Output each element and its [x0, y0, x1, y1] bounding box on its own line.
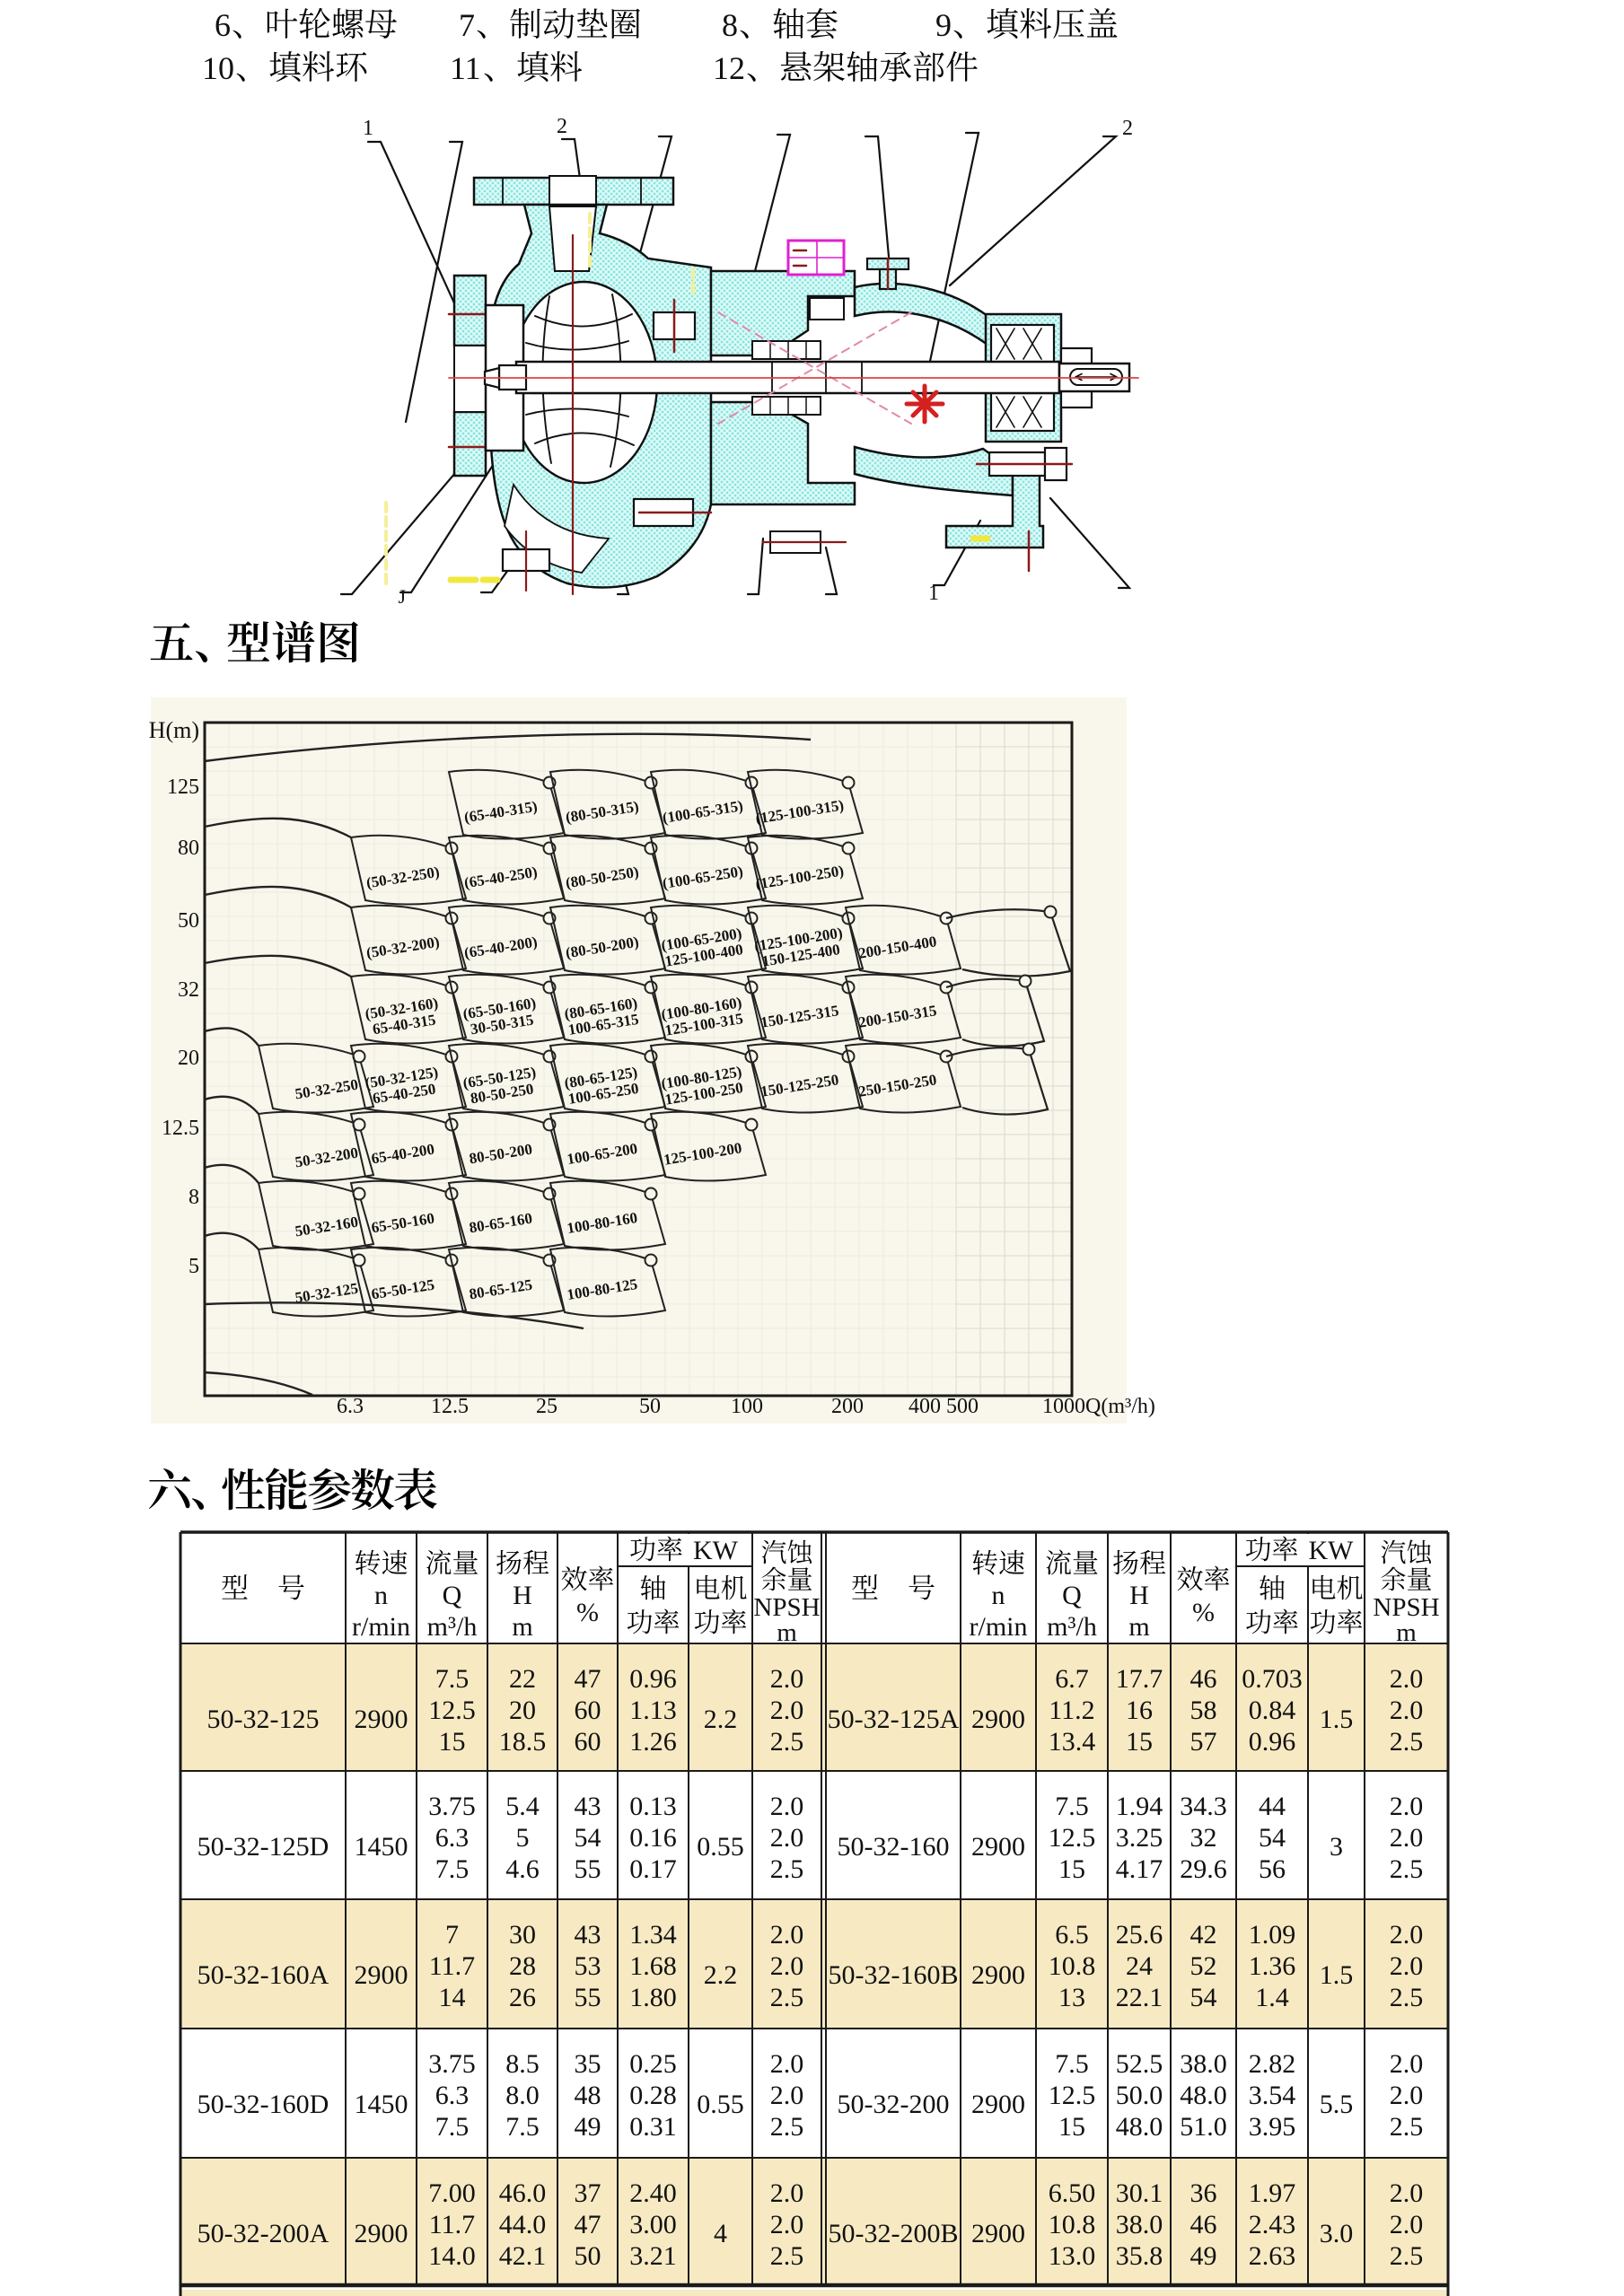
- svg-text:6.3: 6.3: [435, 1823, 470, 1853]
- svg-text:1.5: 1.5: [1320, 1960, 1354, 1990]
- svg-text:52.5: 52.5: [1116, 2049, 1163, 2079]
- svg-text:2.2: 2.2: [704, 1704, 738, 1734]
- svg-text:44: 44: [1259, 1792, 1286, 1821]
- svg-text:60: 60: [575, 1696, 601, 1725]
- svg-text:2.5: 2.5: [770, 1727, 804, 1757]
- svg-text:57: 57: [1190, 1727, 1217, 1757]
- svg-text:2.5: 2.5: [1390, 1854, 1424, 1884]
- svg-text:7: 7: [445, 1920, 459, 1950]
- svg-text:0.84: 0.84: [1249, 1696, 1296, 1725]
- svg-text:46: 46: [1190, 2210, 1217, 2239]
- svg-text:25: 25: [536, 1395, 557, 1418]
- svg-text:3.25: 3.25: [1116, 1823, 1163, 1853]
- svg-text:2.0: 2.0: [770, 1920, 804, 1950]
- svg-text:50-32-160B: 50-32-160B: [829, 1960, 959, 1990]
- svg-text:6.3: 6.3: [435, 2081, 470, 2110]
- svg-text:2900: 2900: [971, 2219, 1025, 2248]
- svg-text:2900: 2900: [355, 1704, 408, 1734]
- svg-text:5.4: 5.4: [505, 1792, 540, 1821]
- svg-text:2.5: 2.5: [770, 1983, 804, 2012]
- svg-text:2.0: 2.0: [770, 1951, 804, 1981]
- svg-text:1.4: 1.4: [1255, 1983, 1289, 2012]
- svg-text:13: 13: [1058, 1983, 1085, 2012]
- svg-text:49: 49: [575, 2112, 601, 2142]
- svg-text:1.13: 1.13: [629, 1696, 677, 1725]
- svg-text:14: 14: [439, 1983, 466, 2012]
- svg-text:46: 46: [1190, 1664, 1217, 1694]
- svg-text:2.63: 2.63: [1249, 2241, 1296, 2271]
- svg-text:30: 30: [509, 1920, 536, 1950]
- svg-text:50-32-200: 50-32-200: [838, 2090, 950, 2119]
- svg-text:2.5: 2.5: [770, 2241, 804, 2271]
- svg-text:48.0: 48.0: [1116, 2112, 1163, 2142]
- svg-text:8: 8: [189, 1186, 199, 1209]
- svg-text:20: 20: [509, 1696, 536, 1725]
- svg-text:2900: 2900: [971, 2090, 1025, 2119]
- svg-text:10.8: 10.8: [1049, 2210, 1096, 2239]
- svg-text:46.0: 46.0: [499, 2178, 547, 2208]
- svg-text:50: 50: [575, 2241, 601, 2271]
- svg-text:11: 11: [450, 50, 481, 86]
- svg-text:50-32-125A: 50-32-125A: [828, 1704, 960, 1734]
- svg-text:49: 49: [1190, 2241, 1217, 2271]
- svg-text:38.0: 38.0: [1180, 2049, 1227, 2079]
- svg-text:50-32-160D: 50-32-160D: [198, 2090, 329, 2119]
- svg-text:2.0: 2.0: [1390, 2178, 1424, 2208]
- svg-text:2: 2: [1122, 117, 1133, 140]
- svg-text:15: 15: [1058, 1854, 1085, 1884]
- svg-text:0.96: 0.96: [629, 1664, 677, 1694]
- svg-text:1.36: 1.36: [1249, 1951, 1296, 1981]
- svg-text:80: 80: [178, 837, 199, 860]
- svg-text:10.8: 10.8: [1049, 1951, 1096, 1981]
- svg-text:6: 6: [215, 7, 231, 43]
- svg-text:2.0: 2.0: [770, 2178, 804, 2208]
- svg-text:20: 20: [178, 1047, 199, 1070]
- svg-text:1.97: 1.97: [1249, 2178, 1296, 2208]
- svg-text:6.7: 6.7: [1055, 1664, 1089, 1694]
- svg-text:42: 42: [1190, 1920, 1217, 1950]
- svg-text:16: 16: [1126, 1696, 1153, 1725]
- svg-text:3.75: 3.75: [428, 1792, 476, 1821]
- svg-text:11.7: 11.7: [429, 1951, 475, 1981]
- svg-text:8.5: 8.5: [505, 2049, 540, 2079]
- svg-text:7.5: 7.5: [1055, 1792, 1089, 1821]
- svg-text:4.6: 4.6: [505, 1854, 540, 1884]
- svg-text:2.40: 2.40: [629, 2178, 677, 2208]
- svg-text:12.5: 12.5: [162, 1117, 199, 1140]
- svg-text:1.80: 1.80: [629, 1983, 677, 2012]
- svg-text:54: 54: [1259, 1823, 1286, 1853]
- svg-text:12.5: 12.5: [1049, 2081, 1096, 2110]
- svg-text:m: m: [1396, 1618, 1417, 1647]
- svg-text:1: 1: [363, 117, 373, 140]
- svg-text:1.5: 1.5: [1320, 1704, 1354, 1734]
- svg-text:2.0: 2.0: [770, 2210, 804, 2239]
- svg-text:200: 200: [831, 1395, 864, 1418]
- svg-text:Q: Q: [1062, 1581, 1082, 1610]
- svg-text:54: 54: [1190, 1983, 1217, 2012]
- svg-text:7.5: 7.5: [435, 2112, 470, 2142]
- svg-text:1.26: 1.26: [629, 1727, 677, 1757]
- svg-text:0.13: 0.13: [629, 1792, 677, 1821]
- svg-text:4: 4: [714, 2219, 727, 2248]
- svg-text:7.5: 7.5: [505, 2112, 540, 2142]
- svg-text:KW: KW: [693, 1536, 739, 1565]
- svg-text:35.8: 35.8: [1116, 2241, 1163, 2271]
- svg-text:50-32-160: 50-32-160: [838, 1832, 950, 1862]
- svg-text:34.3: 34.3: [1180, 1792, 1227, 1821]
- svg-text:3: 3: [1330, 1832, 1343, 1862]
- svg-text:6.3: 6.3: [337, 1395, 364, 1418]
- svg-text:11.2: 11.2: [1049, 1696, 1094, 1725]
- svg-text:2.5: 2.5: [1390, 2112, 1424, 2142]
- svg-text:50: 50: [639, 1395, 661, 1418]
- svg-text:43: 43: [575, 1920, 601, 1950]
- svg-text:13.4: 13.4: [1049, 1727, 1096, 1757]
- svg-text:2.0: 2.0: [1390, 2049, 1424, 2079]
- svg-text:100: 100: [731, 1395, 763, 1418]
- svg-text:1.68: 1.68: [629, 1951, 677, 1981]
- svg-text:55: 55: [575, 1983, 601, 2012]
- svg-text:2.5: 2.5: [770, 1854, 804, 1884]
- svg-text:47: 47: [575, 2210, 601, 2239]
- svg-text:37: 37: [575, 2178, 601, 2208]
- svg-text:1000Q(m³/h): 1000Q(m³/h): [1042, 1395, 1155, 1418]
- svg-text:50-32-200B: 50-32-200B: [829, 2219, 959, 2248]
- svg-text:2.5: 2.5: [1390, 2241, 1424, 2271]
- svg-text:5: 5: [189, 1255, 199, 1278]
- svg-text:m: m: [1128, 1612, 1149, 1642]
- svg-text:H(m): H(m): [149, 717, 199, 743]
- svg-text:7.5: 7.5: [435, 1854, 470, 1884]
- svg-text:0.16: 0.16: [629, 1823, 677, 1853]
- svg-text:2.0: 2.0: [770, 1696, 804, 1725]
- svg-text:18.5: 18.5: [499, 1727, 547, 1757]
- svg-text:36: 36: [1190, 2178, 1217, 2208]
- svg-text:2.2: 2.2: [704, 1960, 738, 1990]
- svg-text:12.5: 12.5: [431, 1395, 469, 1418]
- svg-text:2.0: 2.0: [1390, 1696, 1424, 1725]
- svg-text:38.0: 38.0: [1116, 2210, 1163, 2239]
- svg-text:12.5: 12.5: [1049, 1823, 1096, 1853]
- svg-text:12.5: 12.5: [428, 1696, 476, 1725]
- svg-text:50-32-125D: 50-32-125D: [198, 1832, 329, 1862]
- svg-text:0.703: 0.703: [1242, 1664, 1303, 1694]
- svg-text:48: 48: [575, 2081, 601, 2110]
- svg-text:55: 55: [575, 1854, 601, 1884]
- svg-text:1.94: 1.94: [1116, 1792, 1163, 1821]
- svg-text:2.0: 2.0: [770, 2081, 804, 2110]
- svg-text:50.0: 50.0: [1116, 2081, 1163, 2110]
- svg-text:14.0: 14.0: [428, 2241, 476, 2271]
- svg-text:9: 9: [935, 7, 952, 43]
- svg-text:n: n: [992, 1581, 1005, 1610]
- svg-text:0.17: 0.17: [629, 1854, 677, 1884]
- svg-text:3.95: 3.95: [1249, 2112, 1296, 2142]
- svg-text:0.55: 0.55: [697, 1832, 744, 1862]
- svg-text:50-32-160A: 50-32-160A: [198, 1960, 329, 1990]
- svg-text:%: %: [1192, 1598, 1215, 1627]
- svg-text:1.09: 1.09: [1249, 1920, 1296, 1950]
- svg-text:29.6: 29.6: [1180, 1854, 1227, 1884]
- svg-text:m: m: [777, 1618, 797, 1647]
- svg-text:7.5: 7.5: [435, 1664, 470, 1694]
- svg-text:1450: 1450: [355, 1832, 408, 1862]
- svg-text:KW: KW: [1309, 1536, 1355, 1565]
- svg-text:50-32-200A: 50-32-200A: [198, 2219, 329, 2248]
- svg-text:50: 50: [178, 909, 199, 933]
- svg-text:3.54: 3.54: [1249, 2081, 1296, 2110]
- svg-text:3.21: 3.21: [629, 2241, 677, 2271]
- svg-text:1450: 1450: [355, 2090, 408, 2119]
- svg-text:0.28: 0.28: [629, 2081, 677, 2110]
- svg-text:2.0: 2.0: [770, 2049, 804, 2079]
- svg-text:n: n: [374, 1581, 388, 1610]
- svg-text:5: 5: [516, 1823, 530, 1853]
- svg-text:m: m: [512, 1612, 532, 1642]
- svg-text:60: 60: [575, 1727, 601, 1757]
- svg-text:2: 2: [557, 115, 567, 138]
- svg-text:4.17: 4.17: [1116, 1854, 1163, 1884]
- svg-text:1.34: 1.34: [629, 1920, 677, 1950]
- svg-text:52: 52: [1190, 1951, 1217, 1981]
- svg-text:2.5: 2.5: [1390, 1727, 1424, 1757]
- svg-text:35: 35: [575, 2049, 601, 2079]
- svg-text:53: 53: [575, 1951, 601, 1981]
- svg-text:H: H: [513, 1581, 532, 1610]
- svg-text:15: 15: [439, 1727, 466, 1757]
- svg-text:2.0: 2.0: [1390, 2210, 1424, 2239]
- svg-text:15: 15: [1126, 1727, 1153, 1757]
- svg-text:5.5: 5.5: [1320, 2090, 1354, 2119]
- svg-text:2.0: 2.0: [770, 1792, 804, 1821]
- svg-text:2.43: 2.43: [1249, 2210, 1296, 2239]
- svg-text:7.5: 7.5: [1055, 2049, 1089, 2079]
- svg-text:2.0: 2.0: [1390, 1951, 1424, 1981]
- svg-text:7: 7: [459, 7, 475, 43]
- svg-text:2.82: 2.82: [1249, 2049, 1296, 2079]
- svg-text:7.00: 7.00: [428, 2178, 476, 2208]
- svg-text:44.0: 44.0: [499, 2210, 547, 2239]
- svg-text:26: 26: [509, 1983, 536, 2012]
- svg-text:2900: 2900: [971, 1960, 1025, 1990]
- svg-text:400 500: 400 500: [909, 1395, 979, 1418]
- svg-text:3.00: 3.00: [629, 2210, 677, 2239]
- svg-text:3.0: 3.0: [1320, 2219, 1354, 2248]
- svg-text:r/min: r/min: [352, 1612, 410, 1642]
- svg-text:125: 125: [167, 776, 199, 799]
- svg-text:6.5: 6.5: [1055, 1920, 1089, 1950]
- svg-text:2900: 2900: [355, 1960, 408, 1990]
- svg-text:2900: 2900: [971, 1832, 1025, 1862]
- svg-text:10: 10: [202, 50, 234, 86]
- svg-text:Q: Q: [443, 1581, 462, 1610]
- svg-text:15: 15: [1058, 2112, 1085, 2142]
- svg-text:28: 28: [509, 1951, 536, 1981]
- svg-text:32: 32: [1190, 1823, 1217, 1853]
- svg-text:0.96: 0.96: [1249, 1727, 1296, 1757]
- svg-text:8.0: 8.0: [505, 2081, 540, 2110]
- svg-text:0.31: 0.31: [629, 2112, 677, 2142]
- svg-text:32: 32: [178, 978, 199, 1002]
- svg-text:24: 24: [1126, 1951, 1153, 1981]
- svg-text:2.0: 2.0: [1390, 2081, 1424, 2110]
- svg-text:1: 1: [928, 582, 939, 605]
- svg-text:42.1: 42.1: [499, 2241, 547, 2271]
- svg-text:54: 54: [575, 1823, 601, 1853]
- svg-text:2.0: 2.0: [1390, 1664, 1424, 1694]
- svg-text:12: 12: [713, 50, 745, 86]
- svg-text:0.55: 0.55: [697, 2090, 744, 2119]
- svg-text:m³/h: m³/h: [427, 1612, 478, 1642]
- svg-text:2.0: 2.0: [1390, 1792, 1424, 1821]
- svg-text:3.75: 3.75: [428, 2049, 476, 2079]
- svg-text:2.0: 2.0: [1390, 1823, 1424, 1853]
- svg-text:H: H: [1129, 1581, 1149, 1610]
- svg-text:22.1: 22.1: [1116, 1983, 1163, 2012]
- svg-text:%: %: [576, 1598, 599, 1627]
- svg-text:43: 43: [575, 1792, 601, 1821]
- svg-text:48.0: 48.0: [1180, 2081, 1227, 2110]
- svg-text:47: 47: [575, 1664, 601, 1694]
- svg-text:2.0: 2.0: [770, 1823, 804, 1853]
- svg-text:51.0: 51.0: [1180, 2112, 1227, 2142]
- svg-text:r/min: r/min: [970, 1612, 1028, 1642]
- svg-text:J: J: [398, 585, 406, 608]
- svg-text:6.50: 6.50: [1049, 2178, 1096, 2208]
- svg-text:2900: 2900: [971, 1704, 1025, 1734]
- svg-text:30.1: 30.1: [1116, 2178, 1163, 2208]
- svg-text:m³/h: m³/h: [1047, 1612, 1097, 1642]
- svg-text:58: 58: [1190, 1696, 1217, 1725]
- svg-text:2.0: 2.0: [1390, 1920, 1424, 1950]
- svg-text:2.5: 2.5: [770, 2112, 804, 2142]
- svg-text:17.7: 17.7: [1116, 1664, 1163, 1694]
- svg-text:11.7: 11.7: [429, 2210, 475, 2239]
- svg-text:22: 22: [509, 1664, 536, 1694]
- svg-text:13.0: 13.0: [1049, 2241, 1096, 2271]
- svg-text:8: 8: [722, 7, 738, 43]
- svg-text:0.25: 0.25: [629, 2049, 677, 2079]
- svg-text:2900: 2900: [355, 2219, 408, 2248]
- svg-text:56: 56: [1259, 1854, 1286, 1884]
- svg-text:50-32-125: 50-32-125: [207, 1704, 320, 1734]
- svg-text:2.0: 2.0: [770, 1664, 804, 1694]
- svg-text:2.5: 2.5: [1390, 1983, 1424, 2012]
- svg-text:25.6: 25.6: [1116, 1920, 1163, 1950]
